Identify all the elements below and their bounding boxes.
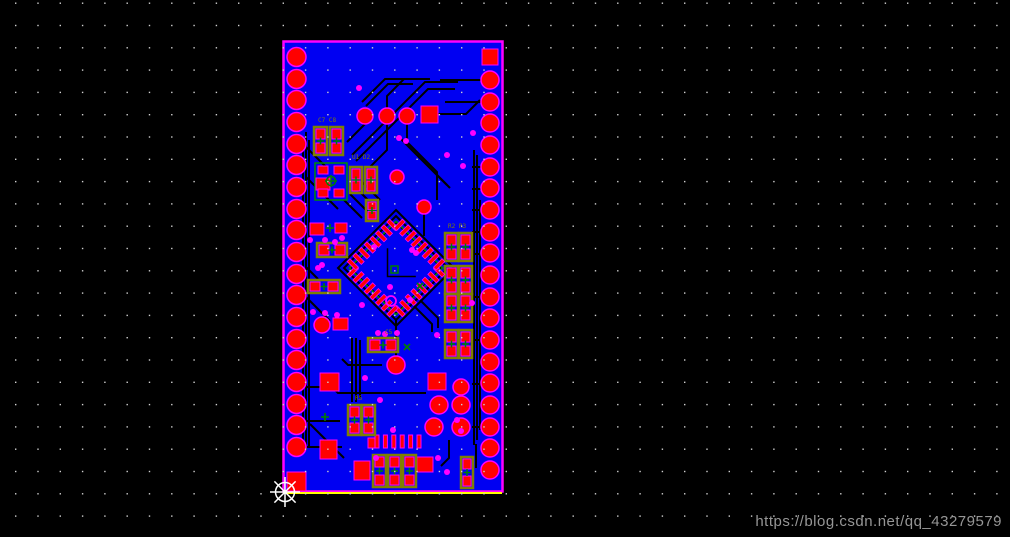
svg-text:R2 R3: R2 R3 [448,223,466,230]
watermark: https://blog.csdn.net/qq_43279579 [755,513,1002,530]
svg-text:C5: C5 [385,329,393,336]
svg-text:R5: R5 [355,395,363,402]
snap-grid-dots [15,3,998,517]
crosshair-cursor[interactable] [270,477,300,507]
svg-text:U1 D2: U1 D2 [352,154,370,161]
pcb-editor-canvas[interactable]: C7 C8U1 D2R2 R3C5R5 [0,0,1010,537]
svg-text:C7 C8: C7 C8 [318,117,336,124]
